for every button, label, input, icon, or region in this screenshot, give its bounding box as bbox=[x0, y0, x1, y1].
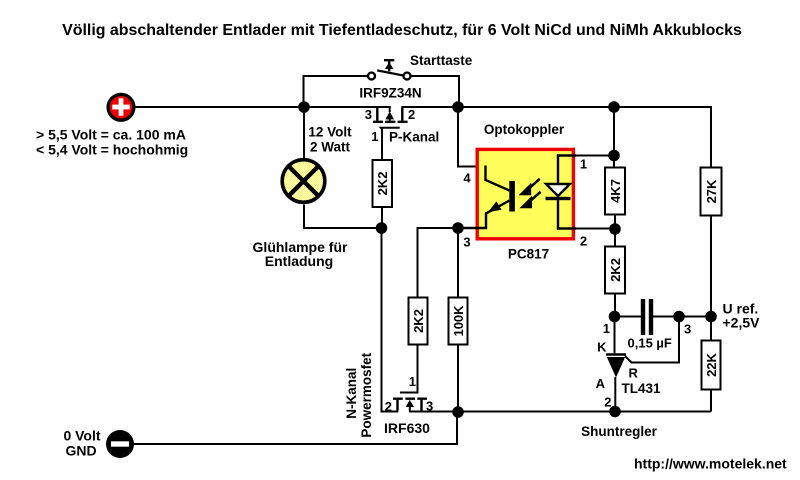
svg-text:A: A bbox=[596, 376, 606, 391]
svg-text:IRF630: IRF630 bbox=[384, 420, 430, 436]
svg-text:0,15 µF: 0,15 µF bbox=[628, 336, 672, 351]
svg-text:3: 3 bbox=[684, 322, 691, 337]
svg-text:1: 1 bbox=[371, 129, 378, 144]
svg-text:2K2: 2K2 bbox=[411, 309, 426, 333]
svg-text:R: R bbox=[629, 366, 639, 381]
svg-text:< 5,4 Volt = hochohmig: < 5,4 Volt = hochohmig bbox=[36, 142, 188, 158]
svg-text:http://www.motelek.net: http://www.motelek.net bbox=[634, 456, 787, 472]
svg-text:Shuntregler: Shuntregler bbox=[581, 424, 658, 439]
svg-text:IRF9Z34N: IRF9Z34N bbox=[359, 86, 421, 101]
svg-text:1: 1 bbox=[409, 374, 416, 389]
svg-text:2K2: 2K2 bbox=[608, 258, 623, 282]
svg-text:Starttaste: Starttaste bbox=[410, 53, 473, 68]
svg-text:22K: 22K bbox=[704, 352, 719, 376]
svg-text:3: 3 bbox=[463, 235, 470, 250]
svg-text:1: 1 bbox=[580, 157, 587, 172]
svg-text:27K: 27K bbox=[704, 179, 719, 203]
svg-text:GND: GND bbox=[65, 443, 96, 459]
svg-text:2 Watt: 2 Watt bbox=[310, 140, 351, 155]
svg-text:2: 2 bbox=[604, 395, 611, 410]
svg-text:Völlig abschaltender Entlader: Völlig abschaltender Entlader mit Tiefen… bbox=[62, 22, 742, 39]
svg-text:3: 3 bbox=[365, 107, 372, 122]
svg-text:0 Volt: 0 Volt bbox=[63, 428, 100, 444]
svg-text:K: K bbox=[597, 340, 607, 355]
svg-text:3: 3 bbox=[426, 399, 433, 414]
svg-text:2K2: 2K2 bbox=[375, 172, 390, 196]
svg-text:100K: 100K bbox=[451, 305, 466, 337]
svg-text:2: 2 bbox=[580, 234, 587, 249]
svg-text:1: 1 bbox=[603, 321, 610, 336]
svg-text:> 5,5 Volt = ca. 100 mA: > 5,5 Volt = ca. 100 mA bbox=[36, 127, 186, 143]
svg-text:Optokoppler: Optokoppler bbox=[484, 122, 565, 137]
svg-text:Entladung: Entladung bbox=[265, 253, 333, 269]
svg-text:+2,5V: +2,5V bbox=[723, 315, 761, 331]
svg-text:12 Volt: 12 Volt bbox=[308, 125, 352, 140]
svg-text:P-Kanal: P-Kanal bbox=[389, 130, 439, 145]
svg-text:PC817: PC817 bbox=[508, 247, 549, 262]
svg-text:2: 2 bbox=[385, 399, 392, 414]
svg-text:2: 2 bbox=[408, 107, 415, 122]
svg-text:Powermosfet: Powermosfet bbox=[359, 352, 374, 437]
svg-text:TL431: TL431 bbox=[622, 381, 662, 396]
svg-text:4K7: 4K7 bbox=[608, 179, 623, 203]
svg-text:N-Kanal: N-Kanal bbox=[344, 368, 359, 419]
svg-text:4: 4 bbox=[463, 171, 471, 186]
